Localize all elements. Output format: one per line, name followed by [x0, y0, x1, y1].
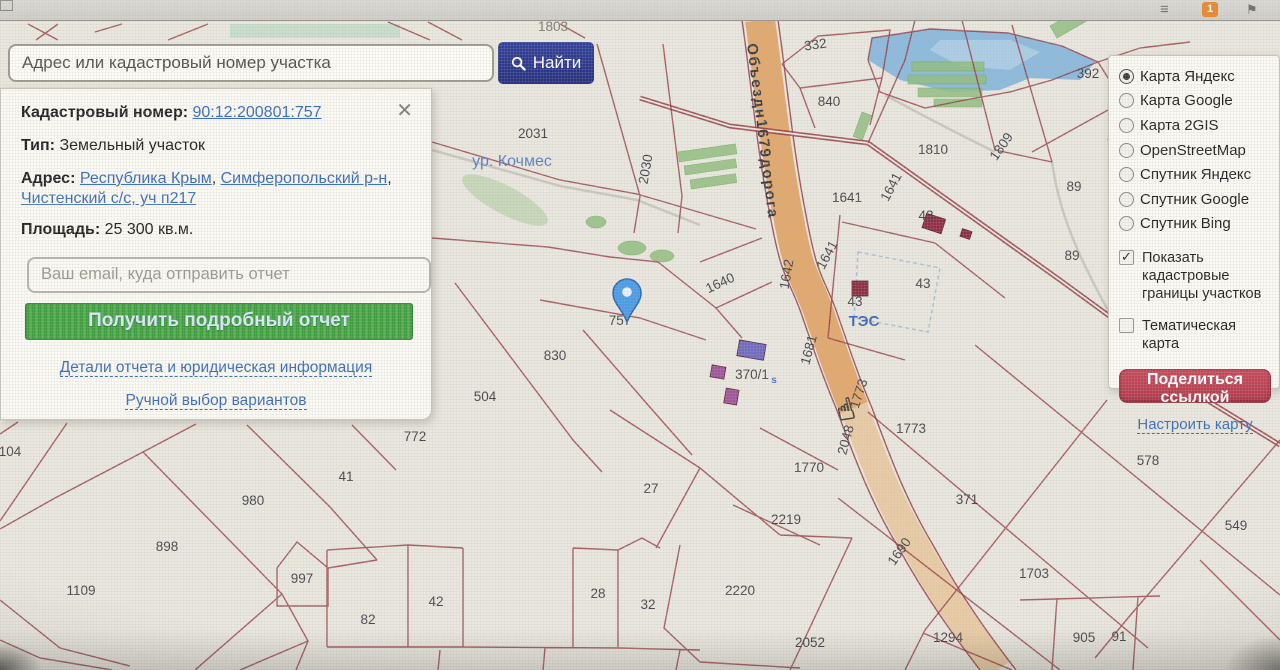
- checkbox-checked-icon: ✓: [1119, 250, 1134, 265]
- share-link-button[interactable]: Поделиться ссылкой: [1119, 369, 1271, 403]
- checkbox-label: Показать кадастровые границы участков: [1142, 249, 1271, 303]
- layer-radio-спутник-bing[interactable]: Спутник Bing: [1119, 212, 1271, 237]
- parcel-label: 2219: [771, 512, 801, 527]
- bookmark-icon[interactable]: ⚑: [1246, 1, 1258, 19]
- checkbox-icon: [1119, 318, 1134, 333]
- radio-label: Спутник Яндекс: [1140, 166, 1251, 183]
- parcel-label: 1770: [794, 460, 824, 475]
- radio-icon: [1119, 118, 1134, 133]
- parcel-label: 1803: [538, 19, 568, 34]
- address-link[interactable]: Симферопольский р-н: [221, 170, 388, 187]
- search-icon: [511, 56, 526, 71]
- parcel-label: 980: [242, 493, 265, 508]
- radio-label: OpenStreetMap: [1140, 142, 1246, 159]
- parcel-label: 43: [915, 276, 930, 291]
- parcel-label: 2031: [518, 126, 548, 141]
- parcel-label: 1773: [896, 421, 926, 436]
- checkbox-label: Тематическая карта: [1142, 317, 1271, 353]
- layer-radio-карта-2gis[interactable]: Карта 2GIS: [1119, 113, 1271, 138]
- manual-choice-link[interactable]: Ручной выбор вариантов: [125, 392, 306, 410]
- parcel-label: 898: [156, 539, 179, 554]
- parcel-info-panel: ✕ Кадастровый номер: 90:12:200801:757 Ти…: [0, 88, 432, 420]
- parcel-label: 1810: [918, 142, 948, 157]
- address-link[interactable]: Республика Крым: [80, 170, 212, 187]
- radio-icon: [1119, 192, 1134, 207]
- parcel-label: 840: [818, 94, 841, 109]
- window-icon: [0, 0, 13, 11]
- parcel-label: 905: [1073, 630, 1096, 645]
- layers-panel: Карта ЯндексКарта GoogleКарта 2GISOpenSt…: [1108, 55, 1280, 389]
- search-button-label: Найти: [533, 53, 582, 73]
- type-label: Тип:: [21, 137, 55, 154]
- parcel-label: 2052: [795, 635, 825, 650]
- area-row: Площадь: 25 300 кв.м.: [21, 220, 411, 241]
- layer-radio-openstreetmap[interactable]: OpenStreetMap: [1119, 138, 1271, 163]
- radio-label: Карта Google: [1140, 92, 1233, 109]
- browser-bar: ≡ 1 ⚑: [0, 0, 1280, 21]
- parcel-label: 82: [360, 612, 375, 627]
- area-value: 25 300 кв.м.: [105, 221, 194, 238]
- radio-icon: [1119, 143, 1134, 158]
- parcel-label: 32: [640, 597, 655, 612]
- parcel-label: 1294: [933, 630, 964, 645]
- details-link-row: Детали отчета и юридическая информация: [21, 359, 411, 377]
- layer-radio-спутник-google[interactable]: Спутник Google: [1119, 187, 1271, 212]
- parcel-label: s: [771, 375, 777, 386]
- address-link[interactable]: Чистенский с/с, уч п217: [21, 190, 196, 207]
- address-links: Республика Крым, Симферопольский р-н, Чи…: [21, 170, 392, 208]
- parcel-label: 830: [544, 348, 567, 363]
- parcel-label: 504: [474, 389, 497, 404]
- parcel-label: 1109: [66, 583, 95, 598]
- configure-link-row: Настроить карту: [1119, 416, 1271, 433]
- parcel-label: 28: [590, 586, 605, 601]
- close-icon[interactable]: ✕: [390, 97, 419, 124]
- get-report-button[interactable]: Получить подробный отчет: [25, 303, 413, 340]
- report-details-link[interactable]: Детали отчета и юридическая информация: [60, 359, 372, 377]
- radio-icon: [1119, 216, 1134, 231]
- parcel-label: 578: [1137, 453, 1160, 468]
- layer-radio-спутник-яндекс[interactable]: Спутник Яндекс: [1119, 162, 1271, 187]
- layer-options: ✓Показать кадастровые границы участковТе…: [1119, 249, 1271, 353]
- parcel-label: 91: [1111, 629, 1126, 644]
- cadastral-number-row: Кадастровый номер: 90:12:200801:757: [21, 103, 411, 124]
- bypass-road-lower: [854, 408, 998, 670]
- email-field[interactable]: [27, 257, 431, 293]
- parcel-label: 370/1: [735, 367, 769, 382]
- menu-icon[interactable]: ≡: [1160, 1, 1169, 19]
- parcel-label: 392: [1077, 66, 1100, 81]
- downloads-badge[interactable]: 1: [1202, 2, 1218, 17]
- parcel-label: 772: [404, 429, 427, 444]
- parcel-label: 43: [847, 294, 862, 309]
- layer-radio-карта-google[interactable]: Карта Google: [1119, 89, 1271, 114]
- manual-link-row: Ручной выбор вариантов: [21, 392, 411, 410]
- address-label: Адрес:: [21, 170, 75, 187]
- configure-map-link[interactable]: Настроить карту: [1137, 416, 1252, 434]
- parcel-label: 997: [291, 571, 314, 586]
- cadastral-map-app: ур. Кочмес ТЭС Объездн1679дорога 1803203…: [0, 0, 1280, 670]
- radio-icon: [1119, 93, 1134, 108]
- layer-checkbox-row[interactable]: Тематическая карта: [1119, 317, 1271, 353]
- cadastral-number-label: Кадастровый номер:: [21, 104, 188, 121]
- base-layer-list: Карта ЯндексКарта GoogleКарта 2GISOpenSt…: [1119, 64, 1271, 236]
- radio-icon: [1119, 69, 1134, 84]
- parcel-label: 1641: [832, 190, 862, 205]
- area-label: Площадь:: [21, 221, 100, 238]
- address-row: Адрес: Республика Крым, Симферопольский …: [21, 169, 411, 211]
- parcel-label: 332: [803, 36, 827, 54]
- parcel-label: 89: [1064, 248, 1079, 263]
- parcel-label: 1641: [877, 170, 904, 204]
- radio-icon: [1119, 167, 1134, 182]
- parcel-label: 89: [1066, 179, 1081, 194]
- parcel-label: 104: [0, 444, 22, 459]
- parcel-label: 1703: [1019, 566, 1049, 581]
- radio-label: Карта 2GIS: [1140, 117, 1219, 134]
- parcel-label: 371: [956, 492, 979, 507]
- parcel-label: 41: [338, 469, 353, 484]
- parcel-label: 43: [918, 208, 933, 223]
- place-label-kochmes: ур. Кочмес: [472, 153, 552, 170]
- radio-label: Спутник Google: [1140, 191, 1249, 208]
- radio-label: Спутник Bing: [1140, 215, 1231, 232]
- parcel-label: 2030: [636, 153, 656, 185]
- layer-checkbox-row[interactable]: ✓Показать кадастровые границы участков: [1119, 249, 1271, 303]
- cadastral-number-link[interactable]: 90:12:200801:757: [193, 104, 322, 121]
- parcel-label: 2220: [725, 583, 755, 598]
- search-button[interactable]: Найти: [498, 42, 594, 84]
- parcel-label: 42: [428, 594, 443, 609]
- power-station-label: ТЭС: [849, 313, 880, 330]
- parcel-label: 27: [643, 481, 658, 496]
- parcel-label: 1640: [703, 270, 737, 296]
- type-row: Тип: Земельный участок: [21, 136, 411, 157]
- radio-label: Карта Яндекс: [1140, 68, 1235, 85]
- type-value: Земельный участок: [59, 137, 205, 154]
- layer-radio-карта-яндекс[interactable]: Карта Яндекс: [1119, 64, 1271, 89]
- search-input[interactable]: [8, 44, 494, 82]
- parcel-label: 549: [1225, 518, 1248, 533]
